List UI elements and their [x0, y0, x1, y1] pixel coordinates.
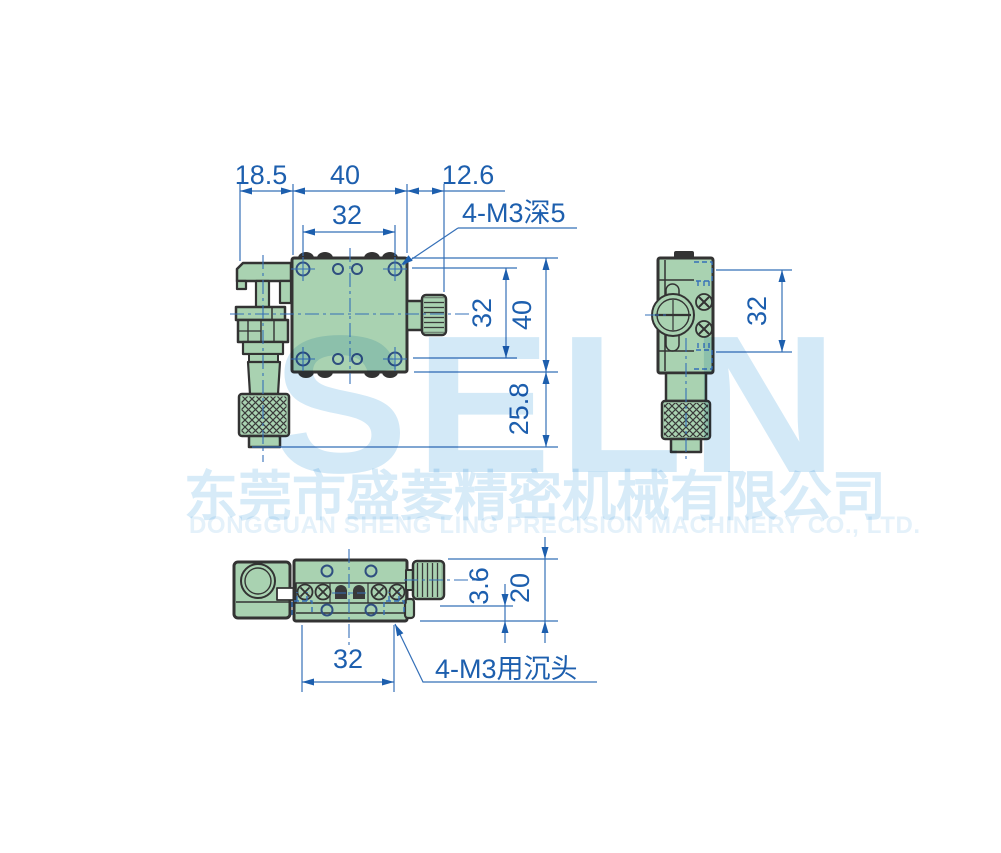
bottom-view: [234, 549, 478, 648]
micrometer-barrel-bottom: [241, 564, 275, 598]
dim-bottom-step: 3.6: [464, 567, 494, 605]
dim-front-micrometer: 25.8: [504, 383, 534, 436]
drawing-page: 18.5 40 12.6 32 4-M3深5 32 40 25.8 32 32 …: [0, 0, 1001, 853]
dim-front-hole-pitch-y: 32: [467, 298, 497, 328]
dim-front-height: 40: [507, 300, 537, 330]
dim-front-hole-pitch-x: 32: [332, 200, 362, 230]
clamp-lug: [335, 585, 347, 599]
note-thread-front: 4-M3深5: [462, 198, 566, 228]
note-counterbore-bottom: 4-M3用沉头: [435, 654, 578, 684]
front-view: [230, 248, 470, 462]
side-view: [645, 251, 713, 462]
dim-bottom-hole-pitch: 32: [333, 644, 363, 674]
knurled-thimble-front: [242, 397, 287, 434]
dim-front-overhang: 18.5: [235, 160, 288, 190]
knurled-knob-front: [424, 298, 444, 333]
clamp-lug: [353, 585, 365, 599]
dim-front-knob: 12.6: [442, 160, 495, 190]
dim-front-width: 40: [330, 160, 360, 190]
dim-side-hole-pitch: 32: [742, 296, 772, 326]
dim-bottom-height: 20: [505, 573, 535, 603]
technical-drawing: 18.5 40 12.6 32 4-M3深5 32 40 25.8 32 32 …: [0, 0, 1001, 853]
